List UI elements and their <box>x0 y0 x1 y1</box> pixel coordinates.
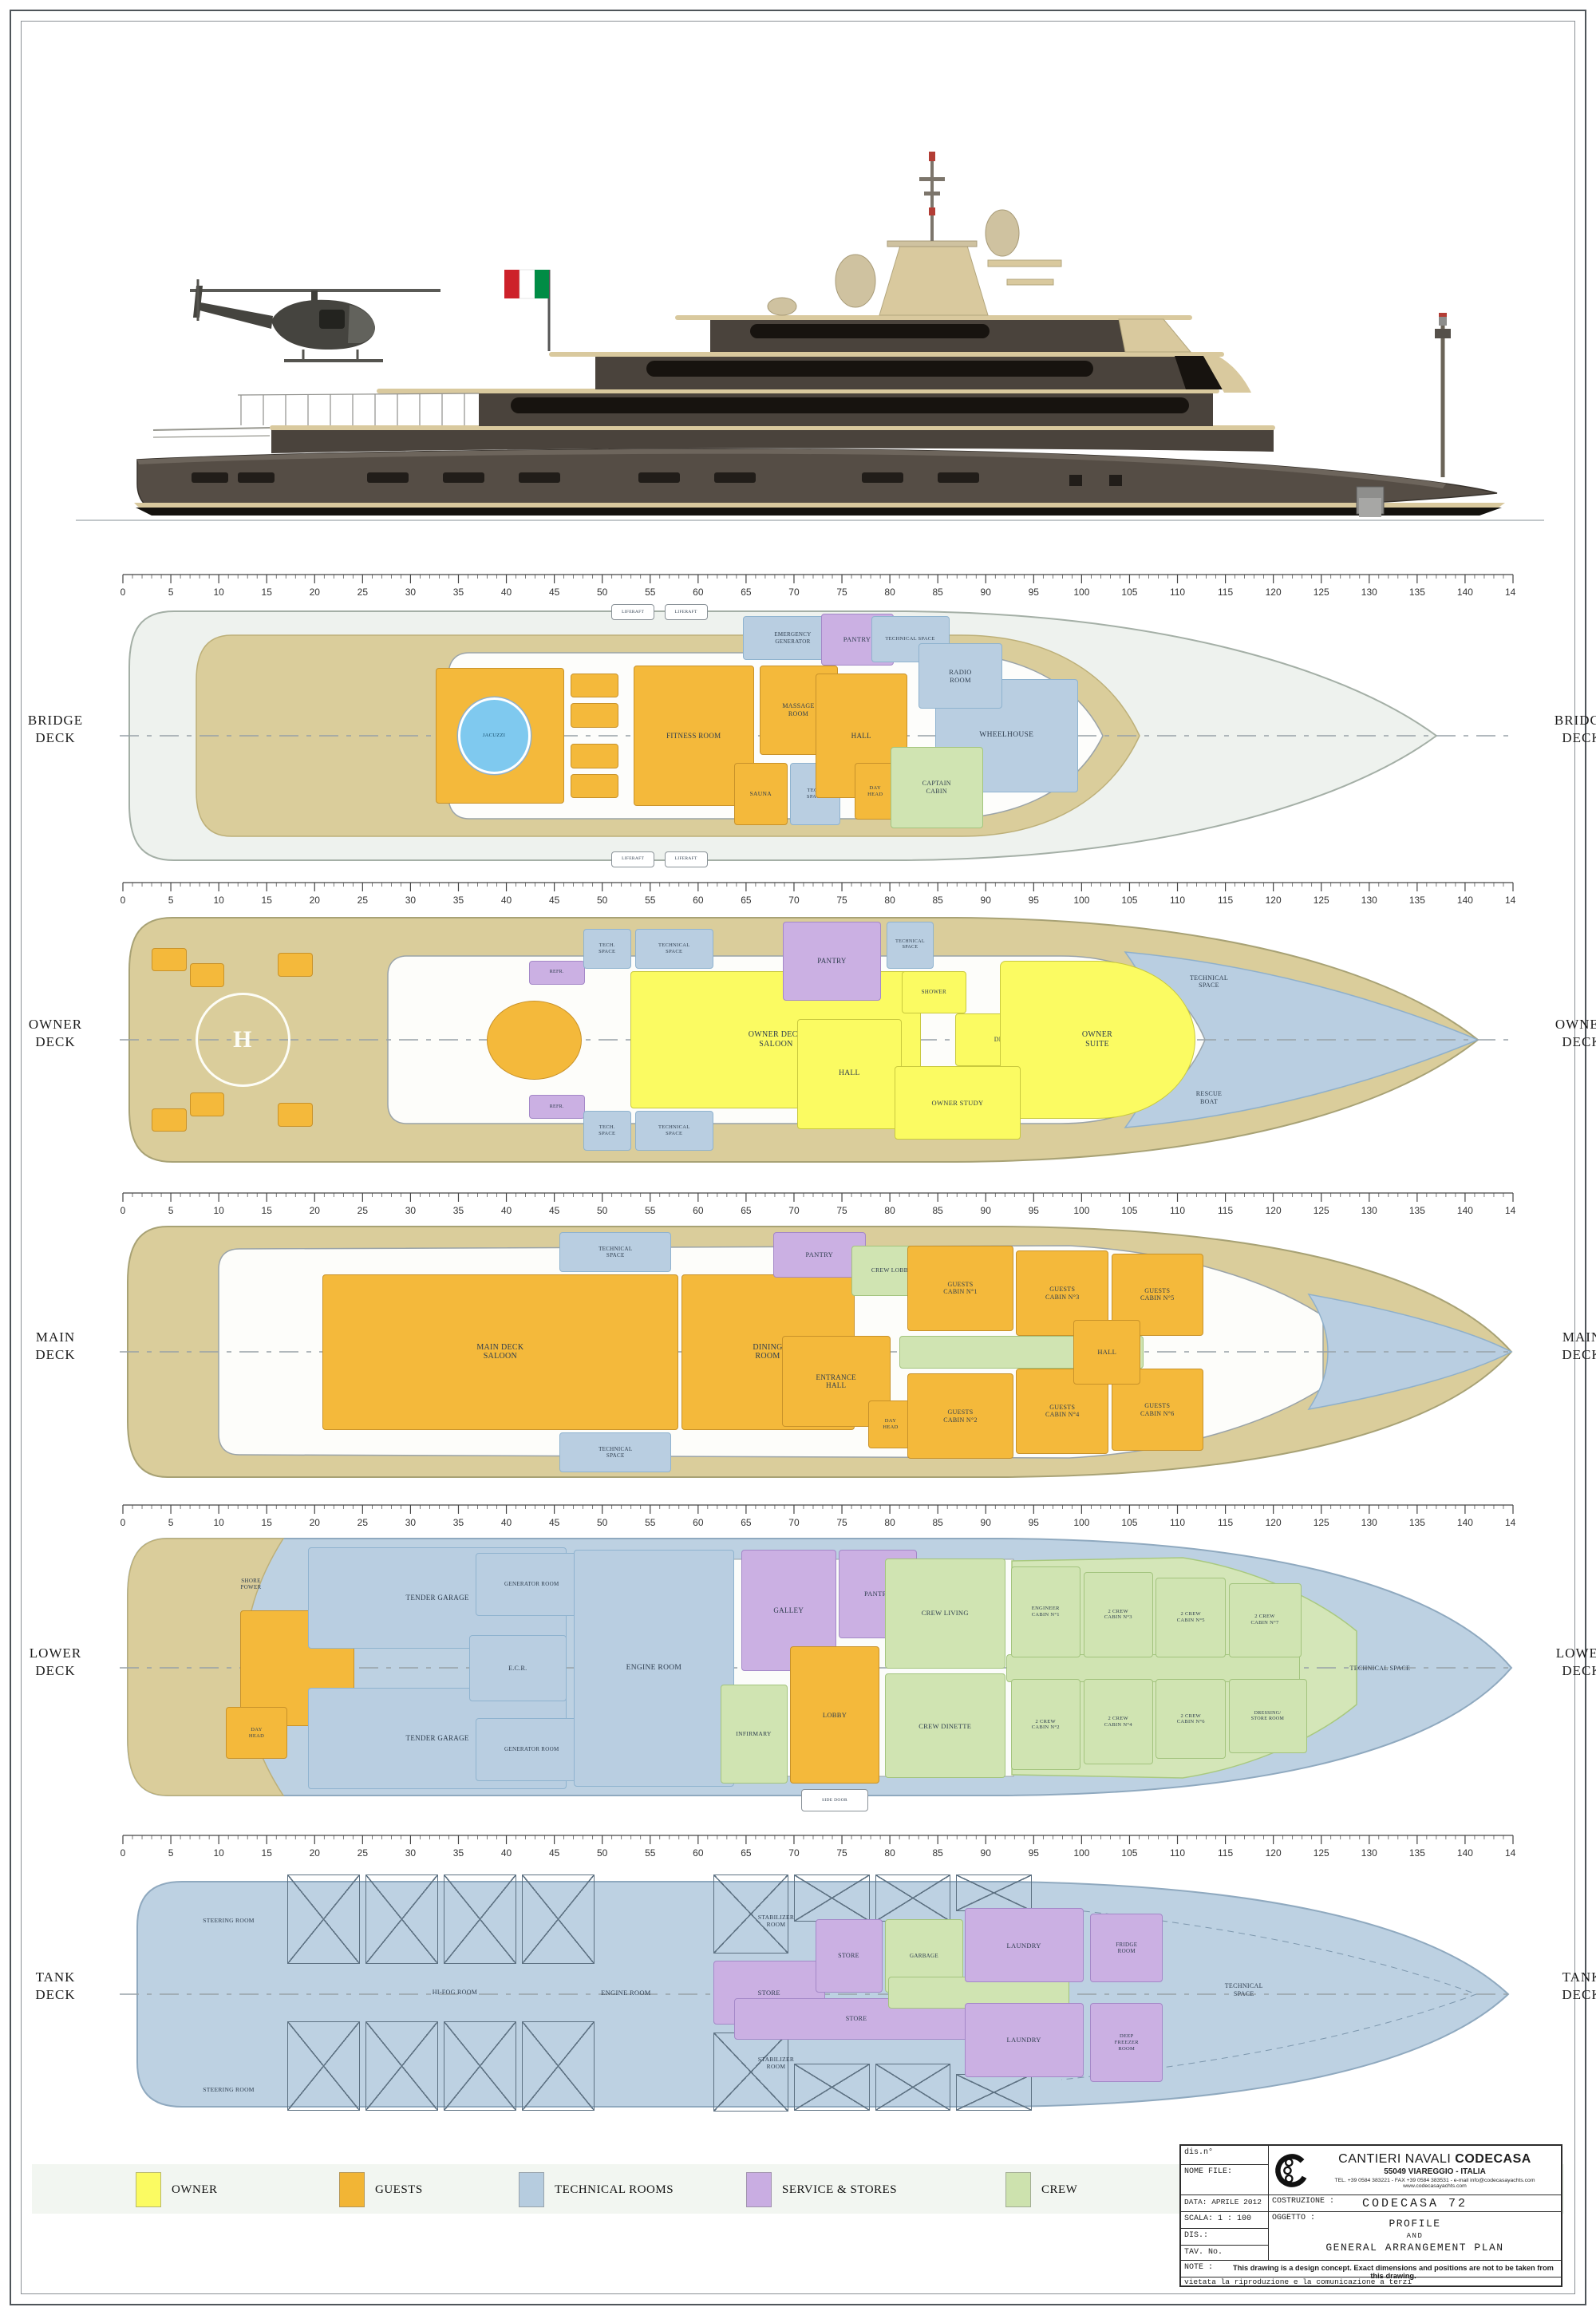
room-label: SHORE POWER <box>241 1578 262 1591</box>
room-label: SIDE DOOR <box>822 1798 847 1803</box>
svg-text:15: 15 <box>262 1847 273 1859</box>
room-infirmary: INFIRMARY <box>721 1685 788 1784</box>
svg-text:135: 135 <box>1409 1205 1425 1216</box>
room-crew-dinette: CREW DINETTE <box>885 1673 1005 1778</box>
svg-text:140: 140 <box>1457 1517 1473 1528</box>
company-address: 55049 VIAREGGIO - ITALIA <box>1312 2167 1558 2176</box>
room-tankx-area <box>875 2064 951 2111</box>
scale-ruler: 0510152025303540455055606570758085909510… <box>120 568 1516 600</box>
svg-text:125: 125 <box>1314 1517 1329 1528</box>
room-label: RESCUE BOAT <box>1196 1090 1222 1105</box>
svg-text:5: 5 <box>168 895 174 906</box>
svg-text:10: 10 <box>213 895 224 906</box>
deck-label-right: MAIN DECK <box>1528 1329 1596 1364</box>
room-rescue-boat: RESCUE BOAT <box>1140 1061 1279 1134</box>
legend-swatch <box>746 2172 772 2207</box>
room-laundry: LAUNDRY <box>965 1908 1084 1981</box>
deck-label-left: TANK DECK <box>2 1969 109 2004</box>
room-technical-space: TECHNICAL SPACE <box>1132 940 1286 1025</box>
deck-label-right: BRIDGE DECK <box>1528 712 1596 747</box>
svg-text:115: 115 <box>1218 895 1233 906</box>
room-guests-area <box>278 953 313 977</box>
svg-text:135: 135 <box>1409 1517 1425 1528</box>
svg-text:95: 95 <box>1029 895 1040 906</box>
room-tankx-area <box>287 2021 360 2111</box>
room-guests-area <box>571 744 618 768</box>
room-label: GALLEY <box>773 1606 804 1615</box>
room-fridge-room: FRIDGE ROOM <box>1090 1914 1163 1982</box>
svg-text:50: 50 <box>597 587 608 598</box>
dis-field: DIS.: <box>1181 2229 1269 2246</box>
room-label: GUESTS CABIN N°5 <box>1140 1287 1175 1302</box>
costruzione-row: COSTRUZIONE : CODECASA 72 <box>1269 2195 1561 2212</box>
svg-text:50: 50 <box>597 895 608 906</box>
room-label: ENGINEER CABIN N°1 <box>1032 1606 1060 1618</box>
svg-text:125: 125 <box>1314 587 1329 598</box>
svg-text:105: 105 <box>1121 1205 1137 1216</box>
room-label: TECHNICAL SPACE <box>598 1246 632 1259</box>
svg-text:80: 80 <box>884 587 895 598</box>
room-label: TECHNICAL SPACE <box>658 1124 690 1136</box>
room-dressing-store-room: DRESSING/ STORE ROOM <box>1229 1679 1307 1753</box>
room-pantry: PANTRY <box>783 922 881 1001</box>
oggetto-value: PROFILE AND GENERAL ARRANGEMENT PLAN <box>1269 2217 1561 2254</box>
svg-text:45: 45 <box>549 895 560 906</box>
rooms-layer: HREFR.REFR.TECH. SPACETECHNICAL SPACETEC… <box>120 908 1516 1171</box>
svg-text:35: 35 <box>453 1517 464 1528</box>
svg-text:145: 145 <box>1505 587 1516 598</box>
svg-text:70: 70 <box>788 587 800 598</box>
svg-text:0: 0 <box>120 1847 126 1859</box>
legend-item-service-stores: SERVICE & STORES <box>746 2172 897 2207</box>
room-label: OWNER STUDY <box>932 1099 984 1107</box>
svg-text:50: 50 <box>597 1847 608 1859</box>
room-technical-space: TECHNICAL SPACE <box>1314 1618 1446 1717</box>
room-tankx-area <box>287 1875 360 1964</box>
mast <box>836 152 1061 315</box>
svg-text:85: 85 <box>932 1205 943 1216</box>
room-label: GENERATOR ROOM <box>504 1746 559 1752</box>
room-label: H <box>233 1025 252 1053</box>
legend-swatch <box>339 2172 365 2207</box>
room-label: STORE <box>846 2015 867 2022</box>
room-guests-area <box>571 703 618 728</box>
svg-text:85: 85 <box>932 895 943 906</box>
svg-text:45: 45 <box>549 1517 560 1528</box>
room-steering-room: STEERING ROOM <box>159 2072 298 2108</box>
svg-text:130: 130 <box>1361 895 1377 906</box>
room-label: GUESTS CABIN N°1 <box>943 1281 978 1296</box>
room-label: CREW LIVING <box>922 1609 969 1617</box>
svg-text:40: 40 <box>501 1517 512 1528</box>
room-tech-space: TECH. SPACE <box>583 1111 631 1151</box>
room-main-deck-saloon: MAIN DECK SALOON <box>322 1274 678 1429</box>
svg-text:80: 80 <box>884 1205 895 1216</box>
room-label: ENGINE ROOM <box>601 1989 651 1997</box>
svg-text:20: 20 <box>310 1847 321 1859</box>
scale-ruler: 0510152025303540455055606570758085909510… <box>120 1499 1516 1531</box>
room-label: DINING ROOM <box>753 1343 782 1362</box>
svg-text:145: 145 <box>1505 1517 1516 1528</box>
svg-text:45: 45 <box>549 587 560 598</box>
svg-text:0: 0 <box>120 1205 126 1216</box>
oggetto-row: OGGETTO : PROFILE AND GENERAL ARRANGEMEN… <box>1269 2212 1561 2261</box>
room-tankx-area <box>365 1875 438 1964</box>
svg-text:80: 80 <box>884 1847 895 1859</box>
room-generator-room: GENERATOR ROOM <box>476 1718 587 1781</box>
room-h: H <box>196 993 290 1088</box>
room-tankx-area <box>365 2021 438 2111</box>
helicopter <box>190 279 440 361</box>
svg-text:75: 75 <box>836 895 847 906</box>
svg-text:120: 120 <box>1266 1847 1282 1859</box>
svg-text:70: 70 <box>788 895 800 906</box>
room-label: WHEELHOUSE <box>979 731 1033 740</box>
svg-text:60: 60 <box>693 1205 704 1216</box>
room-label: CAPTAIN CABIN <box>922 780 951 795</box>
svg-text:50: 50 <box>597 1517 608 1528</box>
room-label: PANTRY <box>843 635 871 643</box>
room-label: REFR. <box>550 970 564 975</box>
room-label: FRIDGE ROOM <box>1116 1942 1137 1955</box>
svg-text:115: 115 <box>1218 587 1233 598</box>
svg-text:65: 65 <box>741 1847 752 1859</box>
profile-view <box>32 112 1564 543</box>
svg-text:100: 100 <box>1073 1517 1089 1528</box>
deck-label-left: OWNER DECK <box>2 1016 109 1051</box>
svg-text:140: 140 <box>1457 895 1473 906</box>
data-field: DATA: APRILE 2012 <box>1181 2195 1269 2212</box>
room-label: TENDER GARAGE <box>406 1594 469 1602</box>
svg-text:105: 105 <box>1121 895 1137 906</box>
room-store: STORE <box>816 1919 883 1993</box>
svg-text:70: 70 <box>788 1517 800 1528</box>
svg-text:5: 5 <box>168 587 174 598</box>
room-label: TECHNICAL SPACE <box>1225 1982 1263 1997</box>
room-laundry: LAUNDRY <box>965 2003 1084 2076</box>
svg-text:115: 115 <box>1218 1847 1233 1859</box>
room-guests-area <box>571 774 618 799</box>
svg-text:140: 140 <box>1457 587 1473 598</box>
room-guests-area <box>278 1103 313 1127</box>
room-label: STEERING ROOM <box>203 1918 255 1925</box>
deck-label-right: TANK DECK <box>1528 1969 1596 2004</box>
room-shore-power: SHORE POWER <box>215 1563 287 1605</box>
deck-label-left: BRIDGE DECK <box>2 712 109 747</box>
legend-label: GUESTS <box>375 2183 423 2197</box>
yacht-hull <box>134 449 1505 517</box>
legend-label: OWNER <box>172 2183 218 2197</box>
foremast <box>1435 313 1451 477</box>
deck-bridge: 0510152025303540455055606570758085909510… <box>120 568 1516 871</box>
room-refr: REFR. <box>529 961 585 985</box>
room-2-crew-cabin-n-7: 2 CREW CABIN N°7 <box>1229 1583 1302 1657</box>
room-technical-space: TECHNICAL SPACE <box>1174 1950 1314 2029</box>
svg-text:55: 55 <box>645 1847 656 1859</box>
svg-text:90: 90 <box>981 1517 992 1528</box>
svg-text:130: 130 <box>1361 1517 1377 1528</box>
svg-text:45: 45 <box>549 1205 560 1216</box>
svg-text:15: 15 <box>262 1205 273 1216</box>
room-label: TECH. SPACE <box>598 1124 615 1136</box>
room-2-crew-cabin-n-2: 2 CREW CABIN N°2 <box>1011 1679 1081 1770</box>
company-name: CANTIERI NAVALI CODECASA <box>1312 2152 1558 2167</box>
svg-text:30: 30 <box>405 587 417 598</box>
room-label: LAUNDRY <box>1007 1942 1041 1950</box>
room-label: STORE <box>758 1989 780 1997</box>
room-label: DRESSING/ STORE ROOM <box>1251 1711 1284 1722</box>
room-liferaft: LIFERAFT <box>665 604 708 620</box>
room-jacuzzi: JACUZZI <box>458 697 531 773</box>
room-hall: HALL <box>797 1019 902 1130</box>
legend-label: SERVICE & STORES <box>782 2183 897 2197</box>
rooms-layer: SHORE POWERDAY HEADTENDER GARAGETENDER G… <box>120 1531 1516 1806</box>
room-label: PANTRY <box>817 957 846 966</box>
room-label: PANTRY <box>805 1250 833 1258</box>
svg-text:145: 145 <box>1505 895 1516 906</box>
svg-text:105: 105 <box>1121 1847 1137 1859</box>
room-label: OWNER SUITE <box>1082 1030 1112 1049</box>
svg-text:75: 75 <box>836 1205 847 1216</box>
svg-text:90: 90 <box>981 1847 992 1859</box>
svg-text:115: 115 <box>1218 1517 1233 1528</box>
room-label: STORE <box>838 1952 859 1959</box>
svg-text:25: 25 <box>358 1847 369 1859</box>
legend-swatch <box>1005 2172 1031 2207</box>
svg-text:40: 40 <box>501 895 512 906</box>
room-liferaft: LIFERAFT <box>611 604 654 620</box>
helideck-railing <box>238 393 479 425</box>
room-day-head: DAY HEAD <box>226 1707 287 1760</box>
svg-text:140: 140 <box>1457 1205 1473 1216</box>
svg-text:55: 55 <box>645 1517 656 1528</box>
svg-text:105: 105 <box>1121 587 1137 598</box>
room-label: ENTRANCE HALL <box>816 1373 856 1390</box>
svg-text:60: 60 <box>693 1847 704 1859</box>
room-technical-space: TECHNICAL SPACE <box>559 1432 671 1472</box>
scale-ruler: 0510152025303540455055606570758085909510… <box>120 1187 1516 1219</box>
svg-text:30: 30 <box>405 1847 417 1859</box>
room-label: HALL <box>851 732 871 741</box>
yacht-profile-svg <box>32 112 1564 543</box>
svg-text:100: 100 <box>1073 587 1089 598</box>
svg-text:5: 5 <box>168 1205 174 1216</box>
svg-text:35: 35 <box>453 1205 464 1216</box>
room-label: TENDER GARAGE <box>406 1734 469 1743</box>
room-label: GUESTS CABIN N°3 <box>1045 1286 1080 1301</box>
scala-field: SCALA: 1 : 100 <box>1181 2212 1269 2229</box>
svg-text:145: 145 <box>1505 1205 1516 1216</box>
rooms-layer: STEERING ROOMSTEERING ROOMHI-FOG ROOMENG… <box>120 1861 1516 2124</box>
room-engine-room: ENGINE ROOM <box>574 1550 734 1787</box>
room-label: JACUZZI <box>483 733 505 739</box>
room-engineer-cabin-n-1: ENGINEER CABIN N°1 <box>1011 1566 1081 1657</box>
svg-text:0: 0 <box>120 1517 126 1528</box>
svg-text:125: 125 <box>1314 1205 1329 1216</box>
room-generator-room: GENERATOR ROOM <box>476 1553 587 1616</box>
room-label: 2 CREW CABIN N°7 <box>1250 1614 1278 1626</box>
room-2-crew-cabin-n-5: 2 CREW CABIN N°5 <box>1156 1578 1226 1657</box>
legend-item-guests: GUESTS <box>339 2172 423 2207</box>
svg-text:130: 130 <box>1361 1205 1377 1216</box>
room-label: FITNESS ROOM <box>666 732 721 741</box>
svg-text:110: 110 <box>1170 1517 1185 1528</box>
room-technical-space: TECHNICAL SPACE <box>635 1111 713 1151</box>
costruzione-value: CODECASA 72 <box>1269 2197 1561 2210</box>
deck-label-right: LOWER DECK <box>1528 1645 1596 1680</box>
room-guests-area <box>190 1092 225 1116</box>
svg-text:100: 100 <box>1073 1847 1089 1859</box>
room-captain-cabin: CAPTAIN CABIN <box>891 747 983 828</box>
room-deep-freezer-room: DEEP FREEZER ROOM <box>1090 2003 1163 2082</box>
room-label: REFR. <box>550 1104 564 1110</box>
legend-item-owner: OWNER <box>136 2172 218 2207</box>
room-day-head: DAY HEAD <box>868 1400 913 1448</box>
svg-text:65: 65 <box>741 1517 752 1528</box>
svg-text:95: 95 <box>1029 587 1040 598</box>
room-guests-area <box>190 963 225 987</box>
svg-text:30: 30 <box>405 895 417 906</box>
svg-text:20: 20 <box>310 587 321 598</box>
room-owner-study: OWNER STUDY <box>895 1066 1021 1140</box>
svg-text:105: 105 <box>1121 1517 1137 1528</box>
company-contacts: TEL. +39 0584 383221 - FAX +39 0584 3835… <box>1312 2178 1558 2183</box>
svg-text:40: 40 <box>501 587 512 598</box>
room-label: SAUNA <box>750 791 772 798</box>
svg-text:40: 40 <box>501 1847 512 1859</box>
room-label: E.C.R. <box>508 1665 527 1672</box>
svg-text:120: 120 <box>1266 895 1282 906</box>
svg-text:120: 120 <box>1266 1205 1282 1216</box>
svg-text:35: 35 <box>453 587 464 598</box>
room-guests-cabin-n-1: GUESTS CABIN N°1 <box>907 1246 1013 1331</box>
room-label: OWNER DECK SALOON <box>749 1030 804 1049</box>
svg-text:55: 55 <box>645 587 656 598</box>
svg-text:125: 125 <box>1314 1847 1329 1859</box>
svg-text:130: 130 <box>1361 587 1377 598</box>
svg-text:65: 65 <box>741 1205 752 1216</box>
svg-text:15: 15 <box>262 1517 273 1528</box>
svg-text:80: 80 <box>884 895 895 906</box>
room-guests-area <box>571 674 618 698</box>
room-label: LIFERAFT <box>622 856 644 861</box>
svg-text:135: 135 <box>1409 587 1425 598</box>
room-label: GENERATOR ROOM <box>504 1581 559 1587</box>
room-label: STABILIZER ROOM <box>758 2056 794 2071</box>
room-label: DAY HEAD <box>867 785 883 797</box>
svg-text:120: 120 <box>1266 587 1282 598</box>
company-website: www.codecasayachts.com <box>1312 2183 1558 2189</box>
svg-text:30: 30 <box>405 1205 417 1216</box>
room-label: 2 CREW CABIN N°3 <box>1104 1609 1132 1621</box>
room-label: TECH. SPACE <box>598 942 615 954</box>
room-label: ENGINE ROOM <box>626 1664 682 1673</box>
svg-text:5: 5 <box>168 1847 174 1859</box>
room-tankx-area <box>522 2021 595 2111</box>
company-header: CANTIERI NAVALI CODECASA 55049 VIAREGGIO… <box>1269 2146 1561 2195</box>
room-crew-area <box>1006 1654 1300 1682</box>
svg-text:125: 125 <box>1314 895 1329 906</box>
svg-text:55: 55 <box>645 1205 656 1216</box>
svg-text:70: 70 <box>788 1847 800 1859</box>
rooms-layer: JACUZZILIFERAFTLIFERAFTLIFERAFTLIFERAFTF… <box>120 600 1516 871</box>
room-guests-area <box>487 1001 582 1080</box>
room-label: LOBBY <box>823 1711 847 1719</box>
room-label: MASSAGE ROOM <box>782 702 814 717</box>
room-technical-space: TECHNICAL SPACE <box>559 1232 671 1272</box>
tav-field: TAV. No. <box>1181 2246 1269 2261</box>
svg-text:65: 65 <box>741 587 752 598</box>
svg-text:110: 110 <box>1170 1847 1185 1859</box>
svg-text:60: 60 <box>693 895 704 906</box>
room-tankx-area <box>875 1875 951 1922</box>
room-label: 2 CREW CABIN N°5 <box>1177 1611 1205 1623</box>
room-label: 2 CREW CABIN N°4 <box>1104 1716 1132 1728</box>
svg-text:135: 135 <box>1409 1847 1425 1859</box>
room-guests-area <box>152 1108 187 1132</box>
svg-text:85: 85 <box>932 1517 943 1528</box>
deck-main: 0510152025303540455055606570758085909510… <box>120 1187 1516 1486</box>
room-label: EMERGENCY GENERATOR <box>774 631 811 645</box>
svg-text:70: 70 <box>788 1205 800 1216</box>
svg-text:95: 95 <box>1029 1847 1040 1859</box>
room-shower: SHOWER <box>902 971 966 1013</box>
svg-text:95: 95 <box>1029 1517 1040 1528</box>
svg-text:75: 75 <box>836 1847 847 1859</box>
room-label: STEERING ROOM <box>203 2087 255 2094</box>
italian-flag <box>504 270 549 351</box>
svg-text:0: 0 <box>120 587 126 598</box>
room-tankx-area <box>522 1875 595 1964</box>
svg-text:75: 75 <box>836 1517 847 1528</box>
svg-text:35: 35 <box>453 1847 464 1859</box>
deck-label-left: LOWER DECK <box>2 1645 109 1680</box>
svg-text:85: 85 <box>932 1847 943 1859</box>
svg-text:20: 20 <box>310 1205 321 1216</box>
room-2-crew-cabin-n-3: 2 CREW CABIN N°3 <box>1084 1572 1154 1657</box>
nome-file-field: NOME FILE: <box>1181 2165 1269 2195</box>
room-label: GARBAGE <box>910 1953 938 1959</box>
svg-text:110: 110 <box>1170 1205 1185 1216</box>
svg-text:90: 90 <box>981 1205 992 1216</box>
room-tankx-area <box>956 2074 1032 2111</box>
room-technical-space: TECHNICAL SPACE <box>635 929 713 969</box>
room-label: STABILIZER ROOM <box>758 1914 794 1929</box>
svg-text:135: 135 <box>1409 895 1425 906</box>
svg-text:145: 145 <box>1505 1847 1516 1859</box>
room-label: LIFERAFT <box>675 610 697 614</box>
room-label: 2 CREW CABIN N°2 <box>1032 1719 1060 1731</box>
room-label: HALL <box>1097 1348 1116 1356</box>
room-2-crew-cabin-n-4: 2 CREW CABIN N°4 <box>1084 1679 1154 1764</box>
room-refr: REFR. <box>529 1095 585 1119</box>
room-label: TECHNICAL SPACE <box>895 939 925 950</box>
drawing-sheet: 0510152025303540455055606570758085909510… <box>0 0 1596 2315</box>
room-lobby: LOBBY <box>790 1646 879 1784</box>
room-crew-living: CREW LIVING <box>885 1558 1005 1669</box>
svg-text:120: 120 <box>1266 1517 1282 1528</box>
codecasa-logo <box>1272 2150 1312 2191</box>
svg-text:85: 85 <box>932 587 943 598</box>
legend-swatch <box>136 2172 161 2207</box>
legend-item-technical-rooms: TECHNICAL ROOMS <box>519 2172 674 2207</box>
room-label: DAY HEAD <box>249 1727 264 1739</box>
room-label: MAIN DECK SALOON <box>476 1343 523 1362</box>
room-label: HALL <box>839 1069 860 1078</box>
room-tankx-area <box>444 2021 516 2111</box>
legend-label: CREW <box>1041 2183 1077 2197</box>
svg-text:25: 25 <box>358 1517 369 1528</box>
